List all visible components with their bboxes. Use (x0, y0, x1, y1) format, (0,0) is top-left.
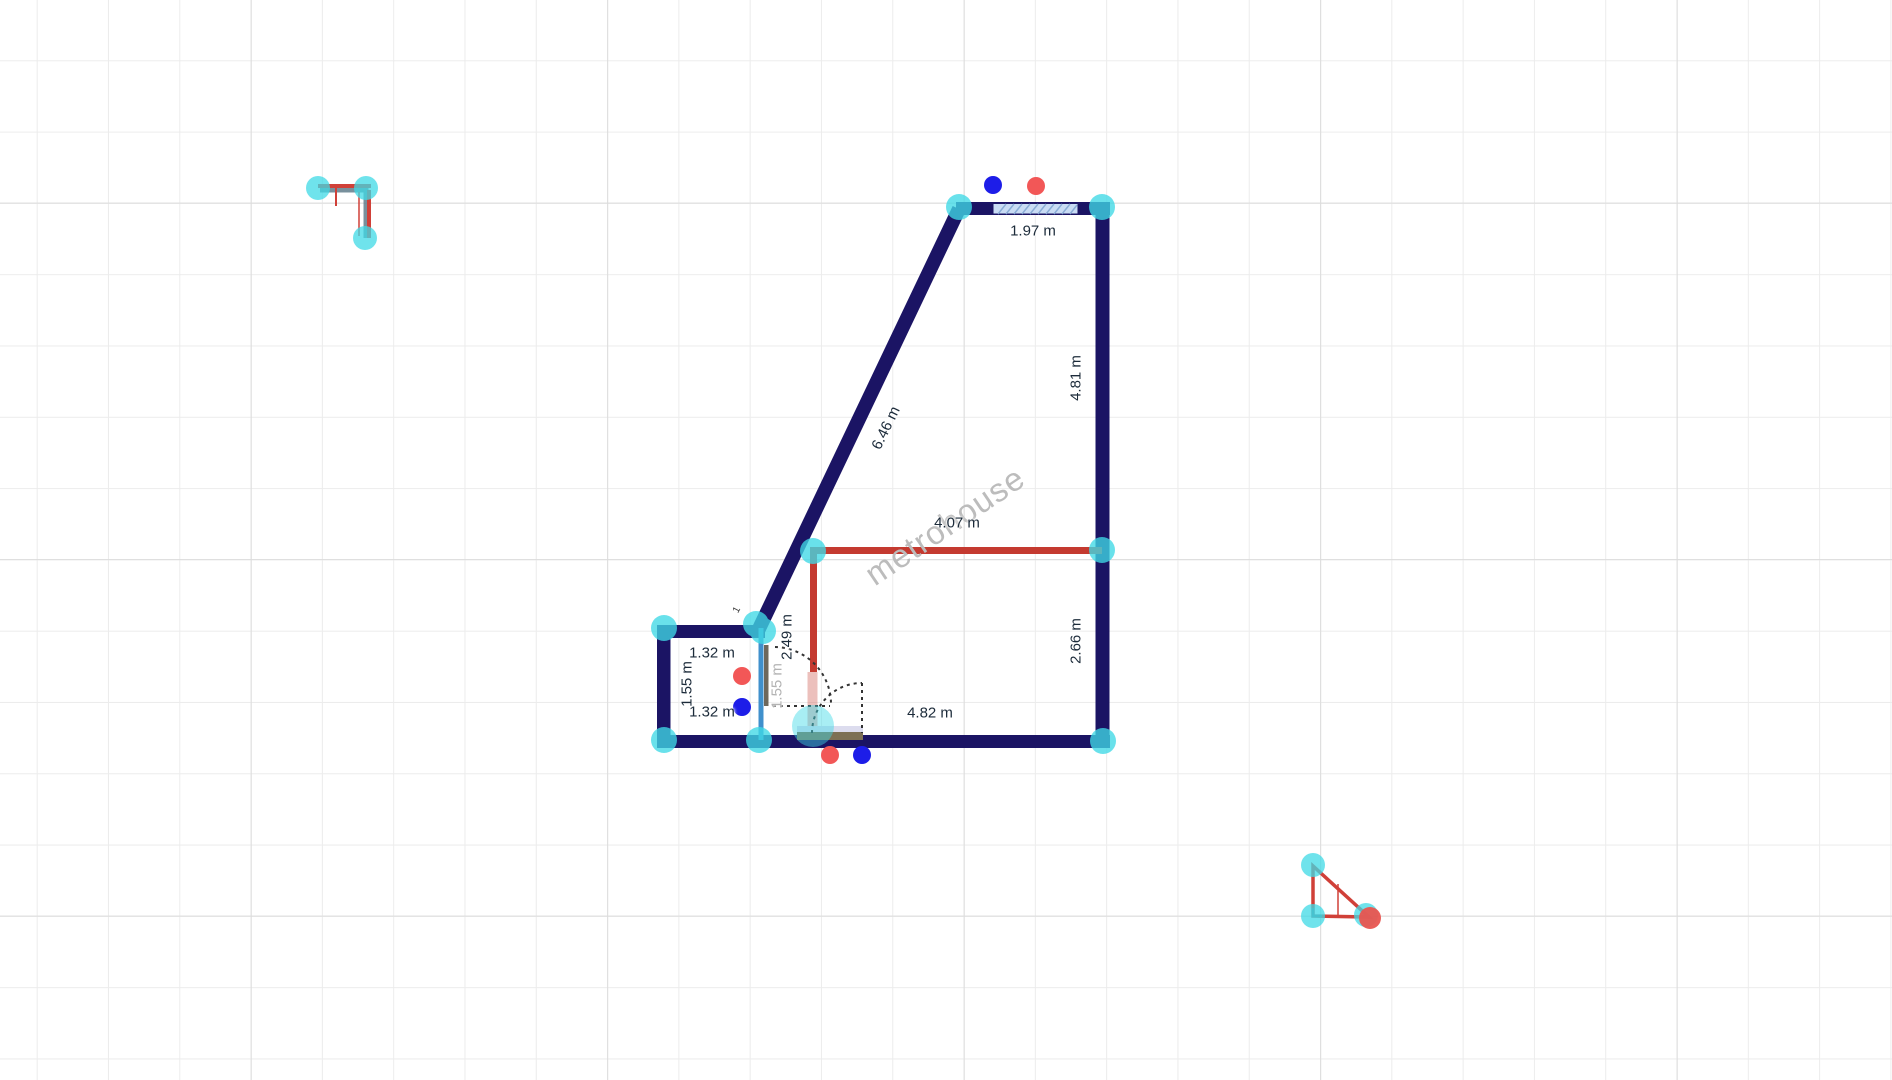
corner-handle[interactable] (651, 727, 677, 753)
measure-widget-bottom-right[interactable] (1301, 853, 1381, 929)
node-dot-blue[interactable] (853, 746, 871, 764)
corner-handle[interactable] (746, 727, 772, 753)
dim-label-partition-wall: 1.55 m (769, 663, 786, 709)
corner-handle[interactable] (946, 194, 972, 220)
node-dot-red[interactable] (1027, 177, 1045, 195)
measure-handle[interactable] (1301, 904, 1325, 928)
corner-handle[interactable] (1089, 537, 1115, 563)
interior-wall-vertical-red[interactable] (810, 551, 817, 672)
node-dot-blue[interactable] (984, 176, 1002, 194)
dim-label-storage-top: 1.32 m (689, 645, 735, 662)
wall-right[interactable] (1096, 202, 1110, 748)
wall-bottom[interactable] (657, 735, 1110, 748)
measure-endpoint-red[interactable] (1359, 907, 1381, 929)
dim-label-interior-vertical: 2.49 m (779, 614, 796, 660)
measure-handle[interactable] (353, 226, 377, 250)
node-dot-blue[interactable] (733, 698, 751, 716)
measure-handle[interactable] (1301, 853, 1325, 877)
node-dot-red[interactable] (821, 746, 839, 764)
corner-handle[interactable] (651, 615, 677, 641)
measure-handle[interactable] (306, 176, 330, 200)
dim-label-storage-left: 1.55 m (679, 661, 696, 707)
floorplan-canvas[interactable]: metrohouse 1.97 m 4.81 m 6.46 m 4.07 m 2… (0, 0, 1892, 1080)
interior-wall-horizontal-red[interactable] (810, 547, 1102, 554)
dim-label-right-lower: 2.66 m (1068, 618, 1085, 664)
dim-label-top-window: 1.97 m (1010, 223, 1056, 240)
corner-handles (651, 194, 1116, 754)
corner-handle[interactable] (1089, 194, 1115, 220)
measure-widget-top-left[interactable] (306, 176, 378, 250)
dim-label-storage-bottom: 1.32 m (689, 704, 735, 721)
door-handle-large[interactable] (792, 705, 834, 747)
window-top[interactable] (993, 204, 1078, 215)
dim-label-bottom-wall: 4.82 m (907, 705, 953, 722)
corner-handle[interactable] (1090, 728, 1116, 754)
corner-handle[interactable] (800, 538, 826, 564)
node-dot-red[interactable] (733, 667, 751, 685)
dim-label-right-upper: 4.81 m (1068, 355, 1085, 401)
partition-wall-blue[interactable] (759, 628, 764, 740)
dim-label-interior-horizontal: 4.07 m (934, 515, 980, 532)
measure-handle[interactable] (354, 176, 378, 200)
corner-handle[interactable] (750, 618, 776, 644)
wall-diagonal[interactable] (757, 209, 959, 633)
